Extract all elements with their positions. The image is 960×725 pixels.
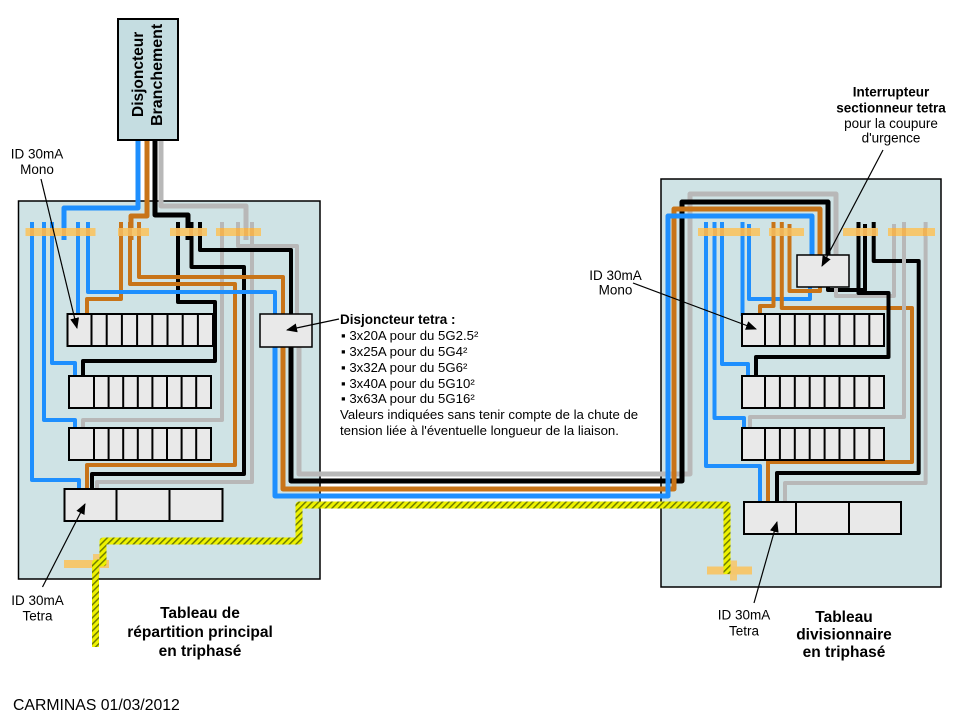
svg-text:d'urgence: d'urgence (862, 131, 921, 146)
svg-text:▪ 3x25A pour du 5G4²: ▪ 3x25A pour du 5G4² (341, 344, 468, 359)
svg-text:▪ 3x40A pour du 5G10²: ▪ 3x40A pour du 5G10² (341, 376, 475, 391)
svg-text:Valeurs indiquées sans tenir c: Valeurs indiquées sans tenir compte de l… (340, 407, 638, 422)
svg-text:en triphasé: en triphasé (803, 644, 886, 661)
svg-text:Tableau de: Tableau de (160, 605, 240, 622)
svg-text:ID 30mA: ID 30mA (718, 608, 771, 623)
svg-text:ID 30mA: ID 30mA (11, 593, 64, 608)
svg-text:Mono: Mono (20, 162, 54, 177)
svg-text:divisionnaire: divisionnaire (796, 627, 892, 644)
svg-text:Interrupteur: Interrupteur (853, 85, 930, 100)
svg-text:pour la coupure: pour la coupure (844, 116, 938, 131)
svg-text:Disjoncteur tetra :: Disjoncteur tetra : (340, 312, 456, 327)
svg-text:ID 30mA: ID 30mA (589, 268, 642, 283)
svg-text:▪ 3x32A pour du 5G6²: ▪ 3x32A pour du 5G6² (341, 360, 468, 375)
svg-text:▪ 3x63A pour du 5G16²: ▪ 3x63A pour du 5G16² (341, 391, 475, 406)
svg-text:Tetra: Tetra (729, 624, 760, 639)
svg-text:Branchement: Branchement (149, 23, 166, 126)
svg-text:Tableau: Tableau (815, 609, 872, 626)
svg-text:▪ 3x20A pour du 5G2.5²: ▪ 3x20A pour du 5G2.5² (341, 328, 479, 343)
svg-text:ID 30mA: ID 30mA (11, 147, 64, 162)
svg-text:en triphasé: en triphasé (159, 643, 242, 660)
svg-text:Disjoncteur: Disjoncteur (130, 32, 147, 117)
svg-text:Mono: Mono (599, 283, 633, 298)
svg-text:répartition principal: répartition principal (127, 624, 273, 641)
svg-text:tension liée à l'éventuelle lo: tension liée à l'éventuelle longueur de … (340, 423, 619, 438)
svg-text:CARMINAS 01/03/2012: CARMINAS 01/03/2012 (13, 697, 180, 714)
svg-text:Tetra: Tetra (22, 609, 53, 624)
svg-text:sectionneur tetra: sectionneur tetra (836, 101, 946, 116)
